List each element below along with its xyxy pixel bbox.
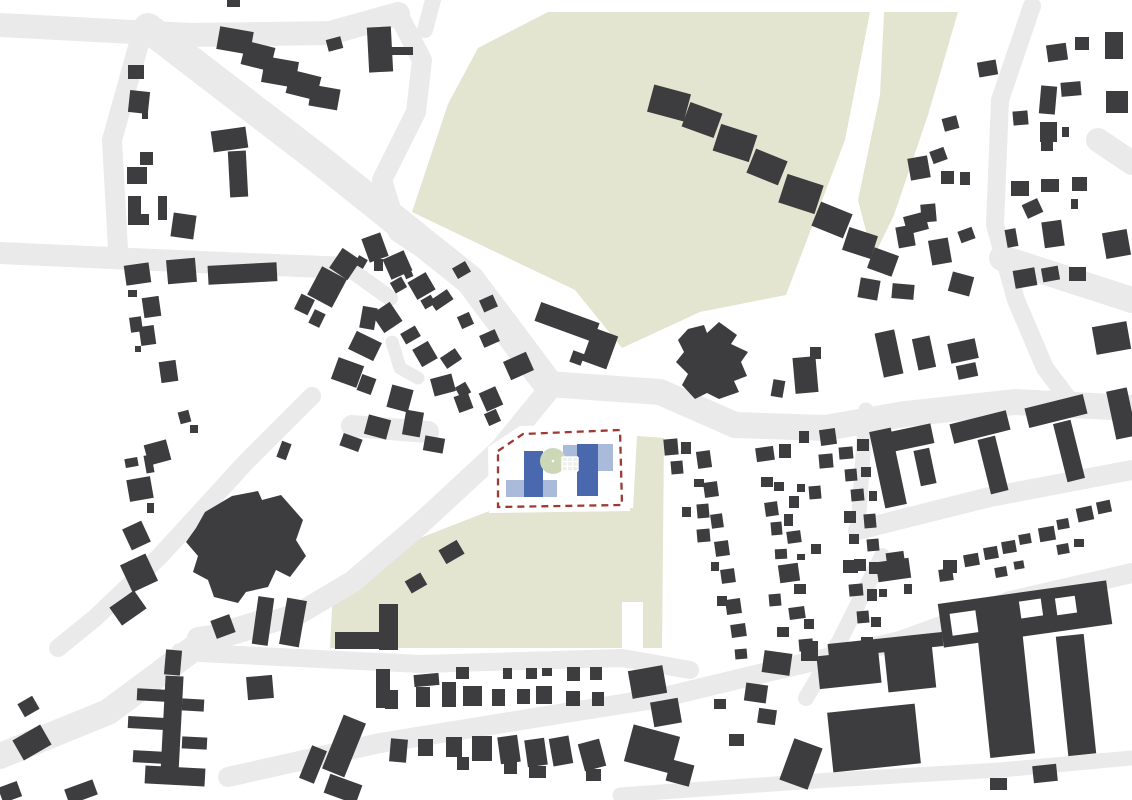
building-footprint — [536, 686, 552, 704]
building-footprint — [1018, 533, 1032, 545]
building-footprint — [164, 649, 182, 675]
building-footprint — [670, 461, 683, 475]
building-footprint — [1056, 543, 1070, 555]
building-footprint — [389, 738, 408, 762]
building-footprint — [963, 553, 980, 567]
building-footprint — [526, 668, 537, 679]
building-footprint — [827, 704, 921, 773]
building-footprint — [457, 757, 469, 770]
building-footprint — [941, 171, 954, 184]
building-footprint — [124, 262, 152, 285]
building-footprint — [374, 259, 383, 271]
building-footprint — [517, 689, 530, 704]
building-footprint — [128, 214, 149, 225]
building-footprint — [907, 155, 931, 180]
building-footprint — [904, 584, 912, 594]
building-footprint — [879, 589, 887, 597]
building-footprint — [867, 589, 877, 601]
building-footprint — [524, 738, 548, 768]
building-footprint — [228, 151, 248, 198]
building-footprint — [472, 736, 492, 761]
building-courtyard — [1019, 599, 1043, 619]
building-footprint — [442, 682, 456, 707]
building-footprint — [884, 643, 936, 693]
building-footprint — [786, 530, 802, 544]
building-footprint — [856, 610, 869, 623]
building-footprint — [711, 562, 719, 571]
building-footprint — [170, 213, 196, 240]
building-footprint — [159, 360, 179, 383]
building-footprint — [811, 544, 821, 554]
building-footprint — [663, 438, 678, 455]
building-footprint — [792, 356, 818, 394]
building-footprint — [1092, 321, 1131, 355]
building-footprint — [804, 619, 814, 629]
building-footprint — [757, 708, 777, 725]
building-footprint — [145, 765, 206, 786]
building-footprint — [1012, 110, 1028, 125]
building-footprint — [983, 546, 999, 560]
building-footprint — [694, 479, 704, 487]
building-footprint — [246, 675, 274, 700]
building-footprint — [567, 667, 580, 681]
building-footprint — [714, 699, 726, 709]
building-courtyard — [1055, 596, 1077, 616]
building-footprint — [799, 431, 809, 443]
building-footprint — [789, 496, 799, 508]
building-footprint — [849, 534, 859, 544]
building-footprint — [142, 296, 162, 318]
building-footprint — [1074, 539, 1084, 547]
building-footprint — [808, 486, 821, 500]
building-footprint — [869, 491, 877, 501]
site-proposed-building — [524, 451, 543, 497]
building-footprint — [147, 503, 154, 513]
building-footprint — [788, 606, 806, 620]
site-pergola-grid — [562, 457, 578, 471]
building-footprint — [497, 735, 521, 765]
building-footprint — [492, 689, 505, 706]
building-footprint — [1041, 139, 1053, 151]
site-proposed-building — [577, 444, 598, 496]
building-footprint — [857, 277, 880, 300]
site-tree-center-dot — [552, 460, 555, 463]
building-footprint — [586, 769, 601, 781]
building-footprint — [696, 450, 712, 469]
building-footprint — [770, 522, 782, 536]
building-footprint — [128, 90, 150, 114]
building-footprint — [891, 283, 914, 300]
building-footprint — [140, 152, 153, 165]
building-footprint — [133, 750, 166, 764]
map-viewport — [0, 0, 1132, 800]
building-footprint — [774, 482, 784, 491]
building-footprint — [463, 686, 482, 706]
building-footprint — [844, 511, 856, 523]
building-footprint — [592, 692, 604, 706]
building-footprint — [1102, 229, 1131, 259]
building-footprint — [139, 325, 156, 346]
building-footprint — [1001, 540, 1017, 554]
building-footprint — [839, 446, 854, 459]
building-footprint — [127, 167, 147, 184]
building-footprint — [1041, 266, 1060, 283]
building-footprint — [682, 507, 691, 517]
site-building-wing — [563, 445, 577, 457]
building-footprint — [367, 26, 393, 72]
building-footprint — [775, 549, 788, 560]
building-footprint — [871, 617, 881, 627]
building-footprint — [542, 668, 552, 676]
building-footprint — [335, 632, 398, 649]
building-footprint — [797, 484, 805, 492]
building-footprint — [857, 439, 869, 451]
building-footprint — [1041, 179, 1059, 192]
building-footprint — [764, 501, 779, 517]
building-footprint — [566, 691, 580, 706]
building-footprint — [182, 736, 208, 749]
building-footprint — [128, 290, 137, 297]
building-footprint — [794, 584, 806, 594]
building-footprint — [943, 560, 957, 573]
building-footprint — [696, 504, 709, 519]
building-footprint — [446, 737, 462, 757]
building-footprint — [227, 0, 240, 7]
building-footprint — [503, 668, 512, 679]
building-footprint — [816, 650, 881, 689]
building-footprint — [628, 665, 667, 699]
building-footprint — [1062, 127, 1069, 137]
building-footprint — [1069, 267, 1086, 281]
building-footprint — [714, 540, 730, 557]
building-footprint — [960, 172, 970, 185]
building-footprint — [1106, 91, 1128, 113]
building-footprint — [844, 468, 857, 481]
building-footprint — [920, 203, 937, 222]
building-footprint — [529, 766, 546, 778]
building-footprint — [1039, 85, 1057, 114]
building-footprint — [158, 196, 167, 220]
building-footprint — [1071, 199, 1078, 209]
building-footprint — [1032, 764, 1058, 783]
building-footprint — [126, 476, 153, 502]
building-footprint — [681, 442, 691, 454]
road — [425, 0, 433, 30]
building-footprint — [994, 566, 1008, 578]
building-footprint — [990, 778, 1007, 790]
building-footprint — [1046, 43, 1068, 63]
building-footprint — [818, 453, 833, 468]
building-footprint — [418, 739, 433, 756]
building-footprint — [730, 623, 747, 638]
building-footprint — [797, 554, 805, 560]
building-footprint — [755, 446, 775, 462]
building-footprint — [590, 667, 602, 680]
building-footprint — [142, 113, 148, 119]
building-footprint — [779, 444, 791, 458]
building-footprint — [851, 488, 865, 501]
building-footprint — [1041, 220, 1064, 249]
building-footprint — [710, 513, 724, 529]
building-footprint — [735, 648, 748, 659]
building-footprint — [768, 593, 781, 606]
building-footprint — [696, 528, 710, 542]
building-footprint — [414, 673, 440, 687]
building-footprint — [762, 650, 793, 676]
building-footprint — [729, 734, 744, 746]
building-footprint — [810, 347, 821, 359]
building-footprint — [1056, 518, 1070, 530]
building-footprint — [819, 428, 837, 446]
building-footprint — [650, 698, 682, 727]
building-footprint — [861, 467, 871, 477]
building-footprint — [385, 690, 398, 709]
building-footprint — [1038, 526, 1056, 543]
building-footprint — [720, 568, 736, 584]
building-footprint — [866, 538, 879, 551]
building-courtyard — [950, 610, 979, 635]
building-footprint — [1013, 560, 1024, 570]
building-footprint — [928, 237, 952, 265]
site-plan-map — [0, 0, 1132, 800]
building-footprint — [504, 762, 517, 774]
building-footprint — [137, 688, 166, 701]
building-footprint — [725, 598, 742, 615]
building-footprint — [182, 698, 205, 711]
building-footprint — [1013, 267, 1038, 289]
building-footprint — [777, 627, 789, 637]
building-footprint — [843, 560, 858, 573]
building-footprint — [208, 262, 278, 285]
building-footprint — [1072, 177, 1087, 191]
building-footprint — [416, 687, 430, 707]
building-footprint — [128, 716, 166, 730]
building-footprint — [128, 65, 144, 79]
building-footprint — [391, 47, 413, 55]
building-footprint — [703, 481, 719, 498]
building-footprint — [166, 258, 197, 284]
building-footprint — [1105, 32, 1123, 59]
site-building-wing — [598, 444, 613, 471]
building-footprint — [135, 346, 141, 352]
building-footprint — [456, 667, 469, 679]
building-footprint — [863, 514, 876, 529]
building-footprint — [744, 683, 768, 704]
building-footprint — [849, 583, 864, 596]
building-footprint — [1075, 37, 1089, 50]
building-footprint — [778, 563, 800, 584]
building-footprint — [784, 514, 793, 526]
building-footprint — [801, 641, 818, 661]
building-footprint — [761, 477, 773, 487]
building-footprint — [1011, 181, 1029, 196]
building-footprint — [895, 225, 915, 249]
building-footprint — [1060, 81, 1081, 97]
building-footprint — [190, 425, 198, 433]
